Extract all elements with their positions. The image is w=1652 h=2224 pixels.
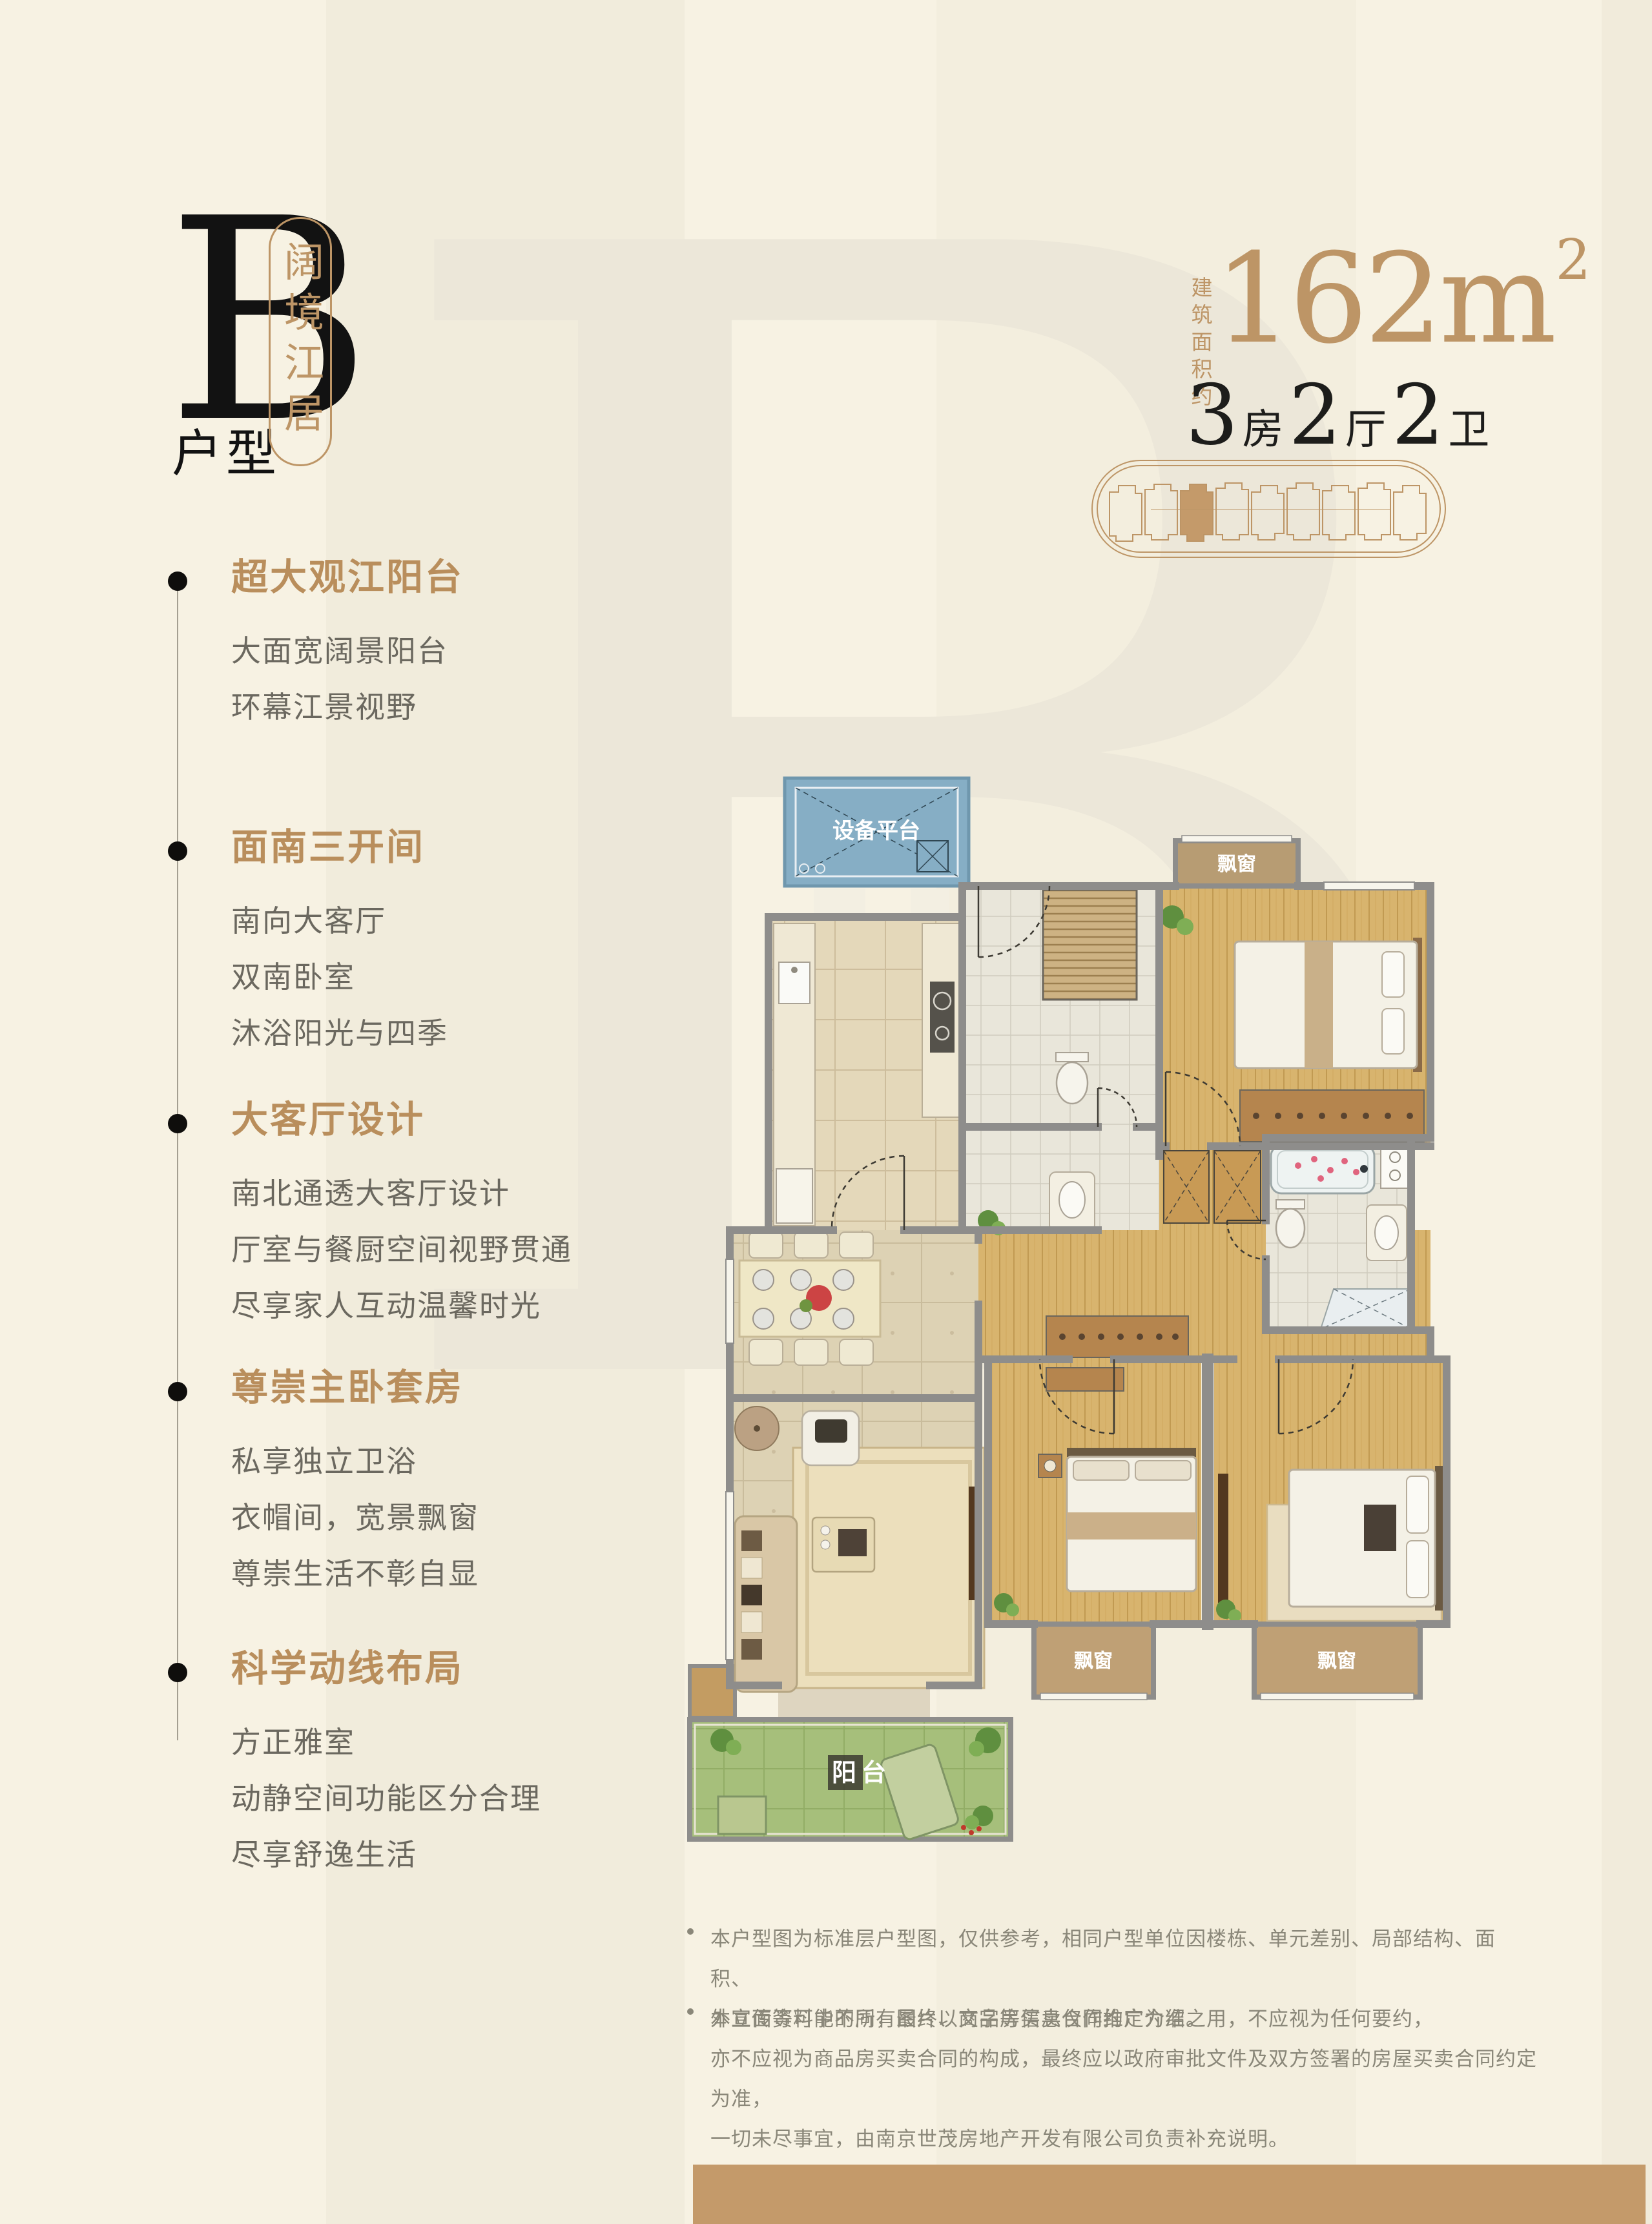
feature-lines: 大面宽阔景阳台 环幕江景视野 [231, 623, 448, 736]
area-value: 162m2 [1214, 238, 1587, 362]
pillar [814, 889, 865, 914]
feature-bullet [168, 571, 187, 591]
spec-unit: 卫 [1448, 409, 1489, 450]
feature-line: 尽享家人互动温馨时光 [231, 1278, 572, 1334]
disclaimer-line: 一切未尽事宜，由南京世茂房地产开发有限公司负责补充说明。 [710, 2119, 1550, 2159]
feature-line: 厅室与餐厨空间视野贯通 [231, 1222, 572, 1278]
feature-line: 衣帽间，宽景飘窗 [231, 1490, 479, 1546]
feature-line: 南向大客厅 [231, 893, 448, 949]
bay-window-label: 飘窗 [1074, 1650, 1113, 1672]
unit-type-label: 户型 [172, 413, 280, 486]
feature-title: 面南三开间 [231, 829, 425, 865]
disclaimer-bullet [687, 1928, 694, 1935]
equipment-platform-label: 设备平台 [832, 819, 920, 843]
disclaimer-line: 本宣传资料中的所有图片、文字等信息仅作推广介绍之用，不应视为任何要约， [710, 1999, 1550, 2039]
spec-number: 2 [1392, 375, 1444, 457]
dresser [1046, 1368, 1124, 1391]
balcony-threshold [778, 1685, 930, 1720]
feature-line: 尊崇生活不彰自显 [231, 1546, 479, 1602]
spec-number: 3 [1186, 375, 1238, 457]
disclaimer-bullet [687, 2008, 694, 2015]
feature-title: 科学动线布局 [231, 1650, 464, 1687]
spec-unit: 房 [1242, 409, 1283, 450]
feature-line: 双南卧室 [231, 949, 448, 1005]
feature-lines: 南北通透大客厅设计 厅室与餐厨空间视野贯通 尽享家人互动温馨时光 [231, 1166, 572, 1334]
area-superscript: 2 [1556, 232, 1587, 288]
feature-title: 大客厅设计 [231, 1101, 425, 1138]
feature-bullet [168, 1114, 187, 1133]
feature-line: 尽享舒逸生活 [231, 1827, 541, 1883]
footer-accent-bar [693, 2165, 1646, 2224]
toilet [1276, 1209, 1305, 1248]
room-spec: 3 房 2 厅 2 卫 [1186, 375, 1494, 457]
feature-lines: 私享独立卫浴 衣帽间，宽景飘窗 尊崇生活不彰自显 [231, 1434, 479, 1602]
building-keyplan [1091, 460, 1446, 558]
feature-title: 尊崇主卧套房 [231, 1369, 464, 1406]
area-number-text: 162 [1214, 238, 1439, 362]
feature-line: 大面宽阔景阳台 [231, 623, 448, 679]
feature-line: 沐浴阳光与四季 [231, 1005, 448, 1062]
balcony-label: 阳台 [832, 1760, 891, 1787]
feature-bullet [168, 1382, 187, 1401]
floor-plan: 设备平台 飘窗 飘窗 飘窗 阳台 [685, 768, 1498, 1860]
feature-line: 私享独立卫浴 [231, 1434, 479, 1490]
dining-furniture [739, 1232, 880, 1365]
area-unit: m [1439, 238, 1553, 362]
feature-timeline [177, 584, 178, 1740]
feature-bullet [168, 1663, 187, 1682]
spec-number: 2 [1288, 375, 1341, 457]
tv-console [1218, 1474, 1228, 1603]
series-name-frame: 阔境江居 [269, 217, 332, 466]
feature-title: 超大观江阳台 [231, 559, 464, 595]
spec-unit: 厅 [1345, 409, 1387, 450]
disclaimer-item: 本宣传资料中的所有图片、文字等信息仅作推广介绍之用，不应视为任何要约， 亦不应视… [710, 1999, 1550, 2159]
feature-bullet [168, 841, 187, 861]
series-name: 阔境江居 [280, 241, 320, 442]
pillar [911, 889, 949, 914]
bay-window-label: 飘窗 [1217, 853, 1256, 875]
feature-line: 环幕江景视野 [231, 679, 448, 736]
bay-window-label: 飘窗 [1317, 1650, 1356, 1672]
bathtub [1271, 1146, 1374, 1193]
feature-line: 方正雅室 [231, 1714, 541, 1771]
feature-lines: 方正雅室 动静空间功能区分合理 尽享舒逸生活 [231, 1714, 541, 1883]
disclaimer-line: 亦不应视为商品房买卖合同的构成，最终应以政府审批文件及双方签署的房屋买卖合同约定… [710, 2039, 1550, 2119]
disclaimer-line: 本户型图为标准层户型图，仅供参考，相同户型单位因楼栋、单元差别、局部结构、面积、 [710, 1919, 1524, 1999]
feature-line: 南北通透大客厅设计 [231, 1166, 572, 1222]
laundry-closet [1043, 890, 1137, 1000]
feature-line: 动静空间功能区分合理 [231, 1771, 541, 1827]
feature-lines: 南向大客厅 双南卧室 沐浴阳光与四季 [231, 893, 448, 1062]
keyplan-units [1093, 461, 1445, 557]
keyplan-highlight-unit [1181, 484, 1213, 541]
bedroom1-furniture [1235, 938, 1424, 1142]
background-band [1602, 0, 1652, 2224]
equipment-platform [785, 778, 969, 914]
